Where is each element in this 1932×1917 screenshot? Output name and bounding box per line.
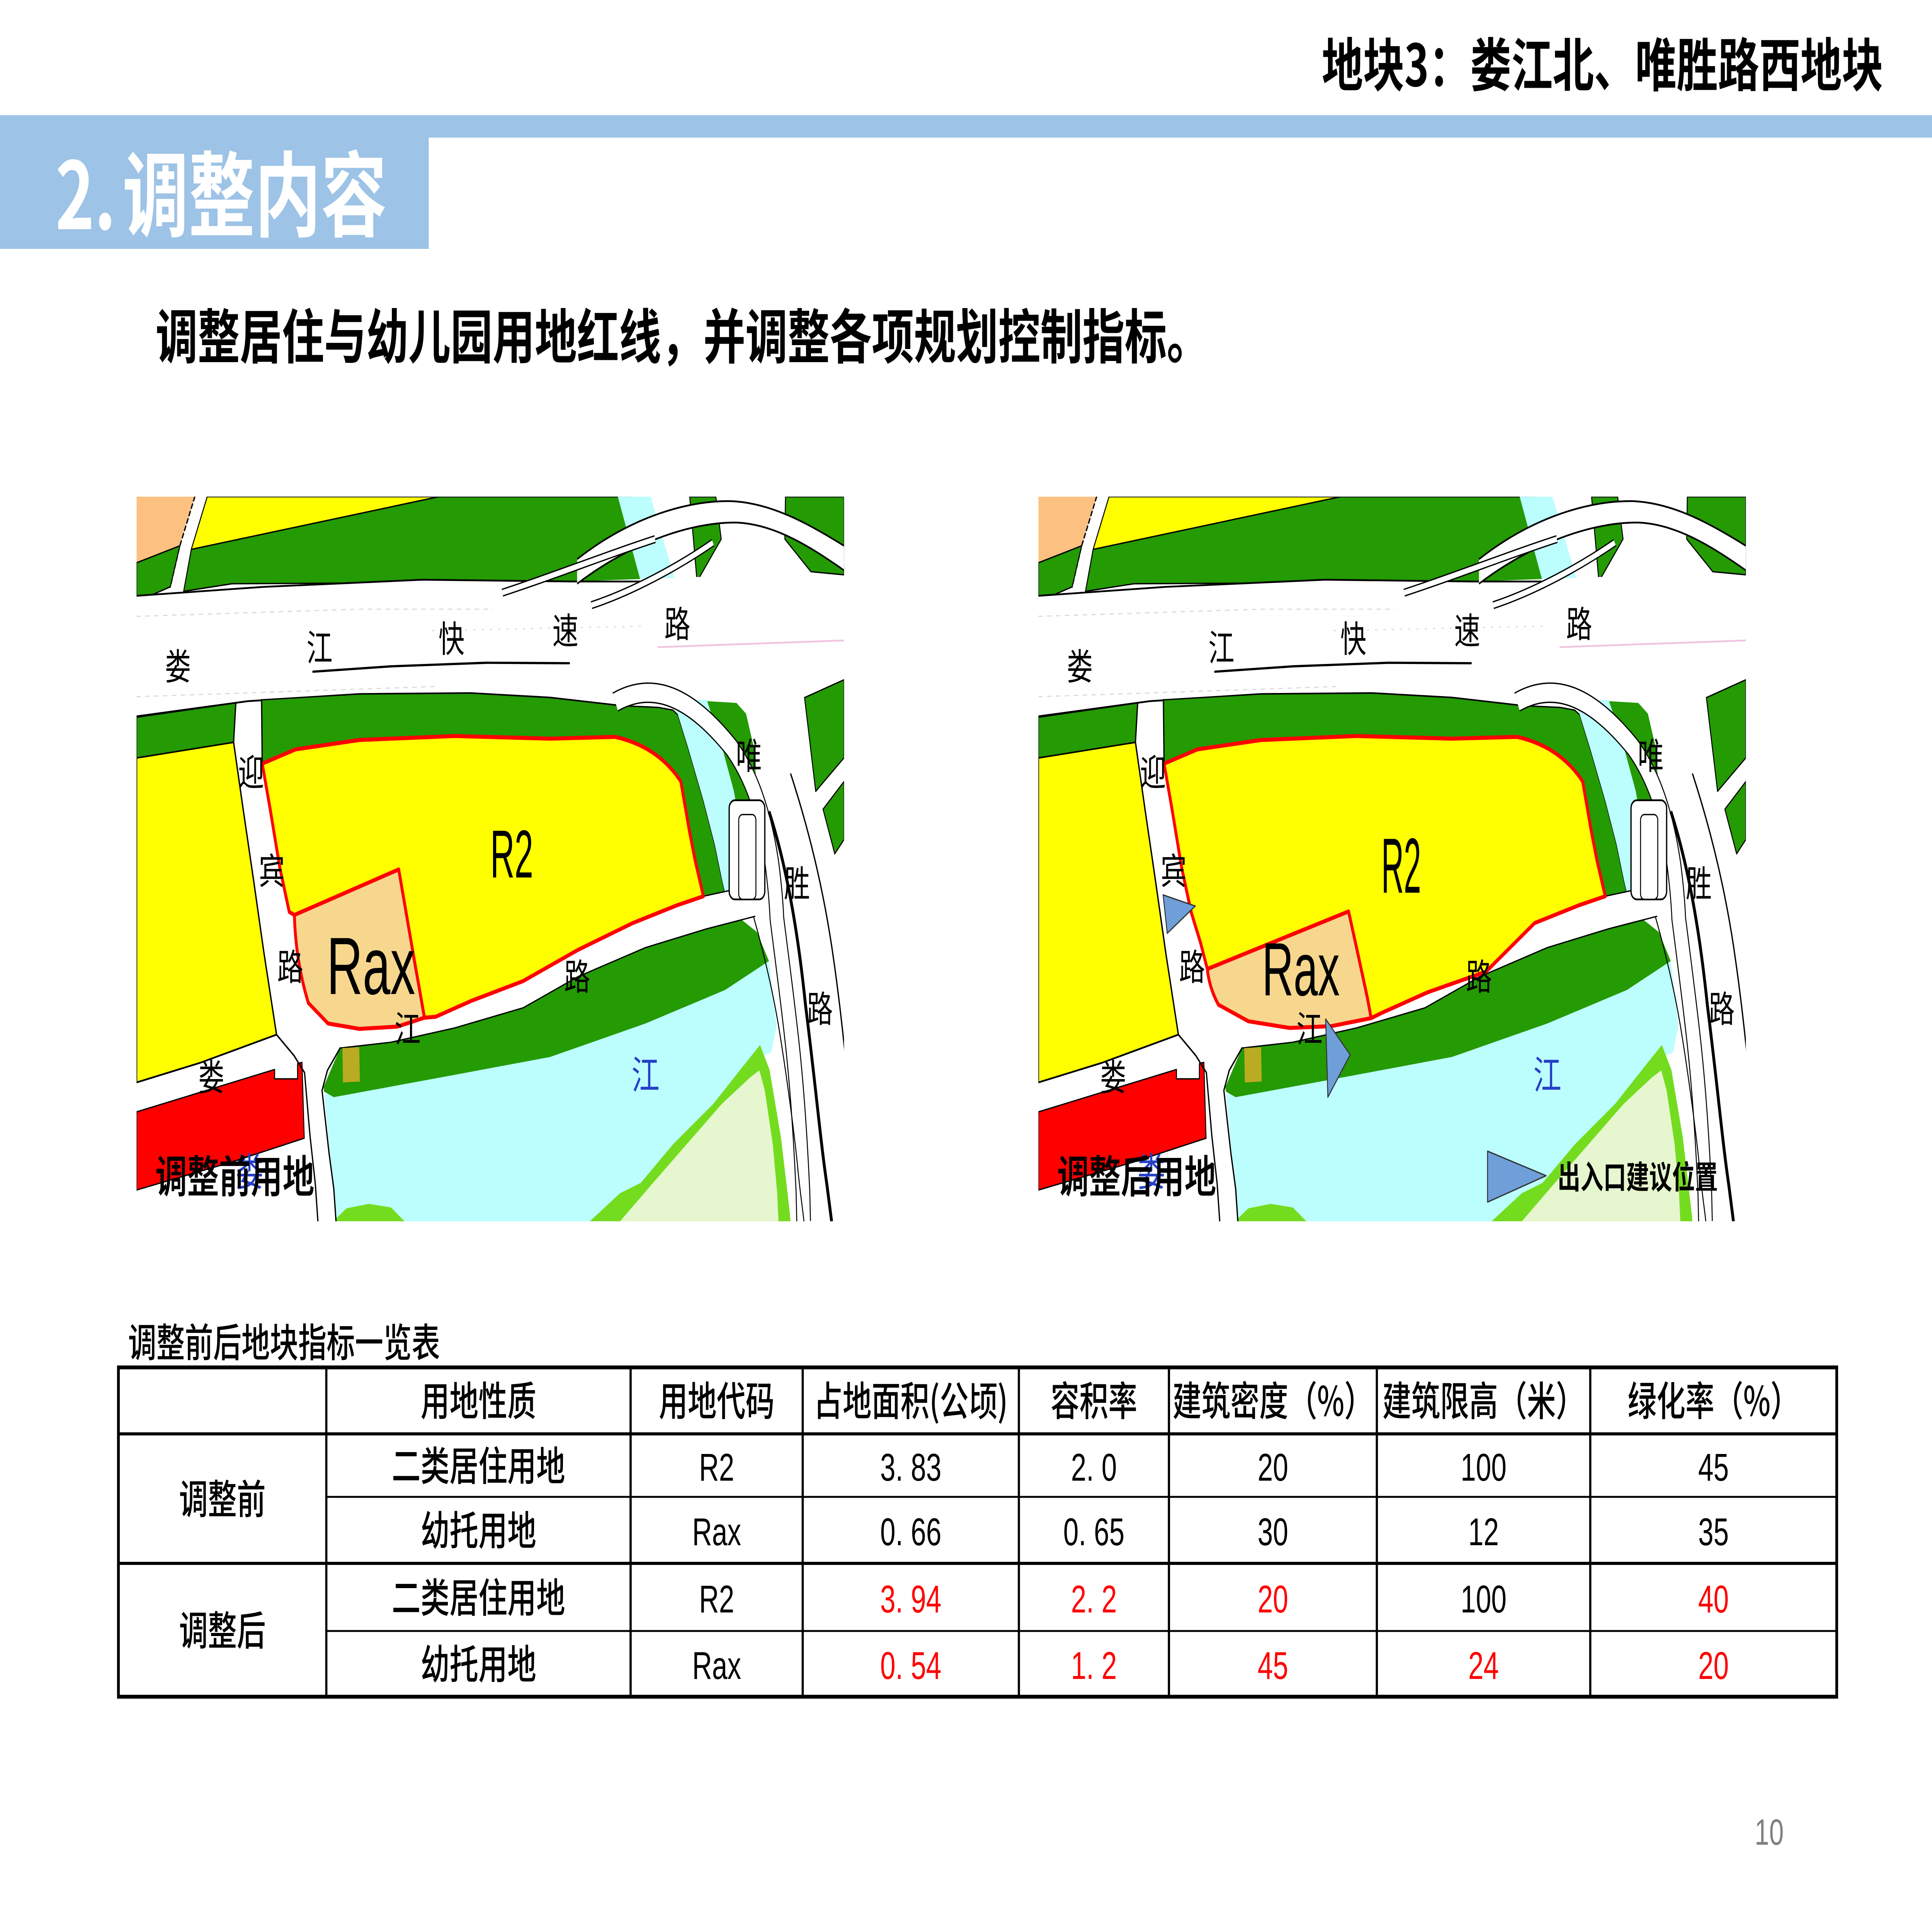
- svg-text:100: 100: [1461, 1446, 1507, 1489]
- svg-text:Rax: Rax: [327, 921, 415, 1011]
- svg-text:20: 20: [1258, 1578, 1288, 1621]
- svg-text:R2: R2: [699, 1446, 734, 1489]
- svg-text:3. 83: 3. 83: [880, 1446, 941, 1489]
- svg-text:Rax: Rax: [1262, 927, 1340, 1011]
- svg-text:Rax: Rax: [692, 1510, 741, 1554]
- svg-text:0. 65: 0. 65: [1063, 1510, 1124, 1554]
- svg-text:24: 24: [1468, 1644, 1499, 1687]
- svg-text:20: 20: [1258, 1446, 1288, 1489]
- svg-text:0. 66: 0. 66: [880, 1510, 941, 1554]
- svg-text:45: 45: [1258, 1644, 1288, 1687]
- svg-text:2. 0: 2. 0: [1071, 1446, 1117, 1489]
- svg-text:R2: R2: [699, 1578, 734, 1621]
- svg-text:20: 20: [1698, 1644, 1729, 1687]
- svg-text:40: 40: [1698, 1578, 1729, 1621]
- svg-text:R2: R2: [490, 817, 533, 892]
- svg-text:45: 45: [1698, 1446, 1729, 1489]
- svg-text:10: 10: [1755, 1812, 1784, 1853]
- svg-text:R2: R2: [1381, 822, 1421, 910]
- svg-text:12: 12: [1468, 1510, 1499, 1554]
- svg-text:30: 30: [1258, 1510, 1288, 1554]
- svg-text:100: 100: [1461, 1578, 1507, 1621]
- svg-text:3. 94: 3. 94: [880, 1578, 941, 1621]
- svg-text:Rax: Rax: [692, 1644, 741, 1687]
- svg-text:1. 2: 1. 2: [1071, 1644, 1117, 1687]
- svg-text:0. 54: 0. 54: [880, 1644, 941, 1687]
- svg-text:2. 2: 2. 2: [1071, 1578, 1117, 1621]
- svg-text:35: 35: [1698, 1510, 1729, 1554]
